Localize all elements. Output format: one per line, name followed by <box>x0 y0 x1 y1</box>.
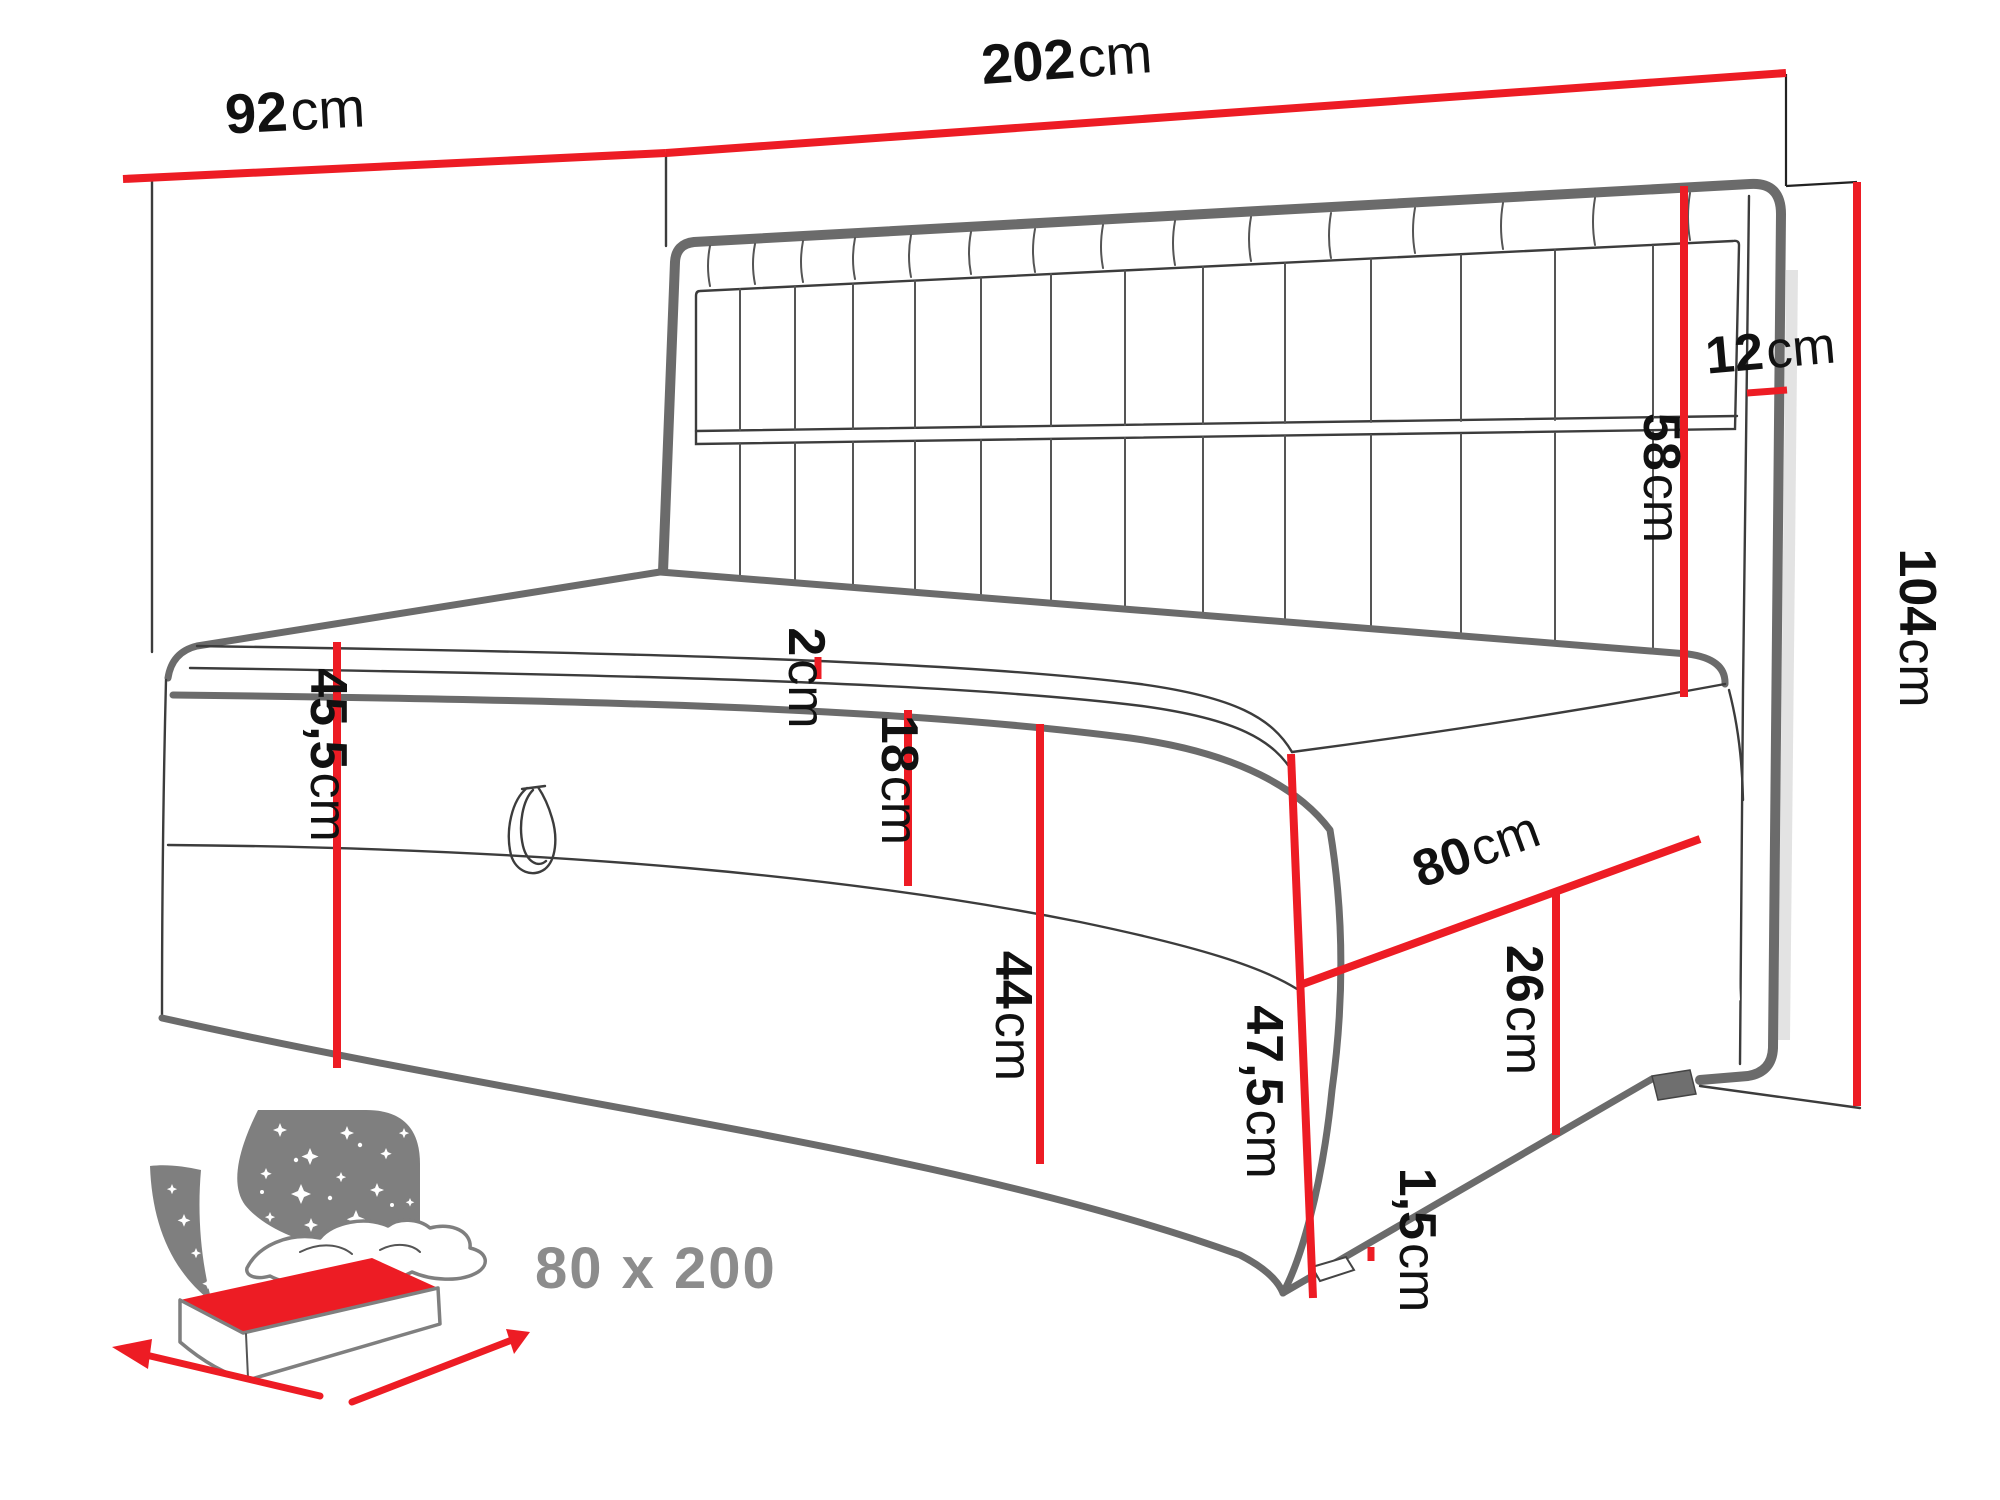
dim-line-92 <box>123 153 666 179</box>
dim-label-12: 12cm <box>1703 317 1838 386</box>
headboard-top-tufting-seams <box>708 193 1690 286</box>
dim-label-26: 26cm <box>1495 945 1553 1075</box>
dim-label-45-5: 45,5cm <box>299 668 357 842</box>
dim-label-1-5: 1,5cm <box>1388 1168 1446 1313</box>
badge-crescent-panel <box>150 1165 212 1302</box>
box-right-back-edge <box>1729 690 1743 800</box>
dim-label-104: 104cm <box>1888 548 1946 707</box>
dim-tick-12 <box>1747 390 1787 393</box>
badge-size-label: 80 x 200 <box>535 1236 777 1301</box>
dim-label-47-5: 47,5cm <box>1235 1005 1293 1179</box>
niche-vertical-slats <box>740 246 1653 430</box>
diagram-canvas: 92cm 202cm 12cm 58cm 104cm 45,5cm 2cm 18… <box>0 0 2000 1500</box>
floor-line <box>1700 1086 1860 1108</box>
headboard-shadow <box>1784 270 1792 1040</box>
dim-line-202 <box>666 73 1786 153</box>
dim-connector-202-right <box>1786 74 1857 186</box>
dim-label-202: 202cm <box>979 21 1154 96</box>
dim-label-58: 58cm <box>1632 413 1690 543</box>
bed-dimension-diagram: 92cm 202cm 12cm 58cm 104cm 45,5cm 2cm 18… <box>0 0 2000 1500</box>
dim-label-92: 92cm <box>223 75 366 145</box>
dim-label-44: 44cm <box>984 951 1042 1081</box>
dim-label-18: 18cm <box>870 715 928 845</box>
right-rear-foot <box>1652 1070 1696 1100</box>
dim-label-2: 2cm <box>777 627 835 728</box>
bed-size-icon: 80 x 200 <box>112 1110 777 1402</box>
left-wall-panel-outline <box>152 154 666 652</box>
